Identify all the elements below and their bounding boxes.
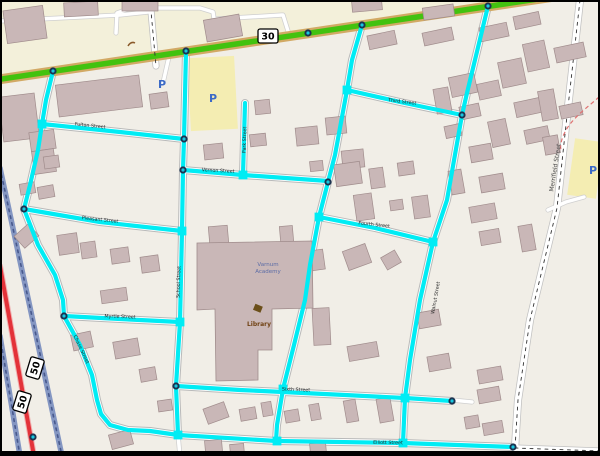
route-node-center — [460, 113, 463, 116]
building — [139, 367, 157, 383]
route-node-center — [450, 399, 453, 402]
building — [43, 155, 60, 169]
building — [284, 409, 300, 423]
building — [498, 58, 527, 88]
route-node-center — [181, 168, 184, 171]
map-viewer-window[interactable]: Fulton StreetPark StreetVernon StreetPle… — [0, 0, 600, 456]
building — [369, 167, 386, 189]
parking-icon: P — [209, 92, 217, 105]
route-node-center — [22, 207, 25, 210]
library-label: Library — [247, 321, 271, 328]
route-vertex-handle[interactable] — [38, 120, 47, 129]
route-node-center — [326, 180, 329, 183]
route-vertex-handle[interactable] — [273, 437, 282, 446]
building — [397, 161, 415, 176]
svg-text:30: 30 — [261, 32, 275, 43]
building — [157, 399, 172, 412]
building — [295, 126, 319, 146]
street-name-label: School Street — [175, 266, 182, 298]
street-name-label: Myrtle Street — [104, 313, 136, 320]
route-vertex-handle[interactable] — [176, 318, 185, 327]
building — [110, 247, 130, 264]
building — [261, 401, 273, 417]
route-vertex-handle[interactable] — [343, 86, 352, 95]
building — [389, 199, 403, 211]
parking-icon: P — [158, 78, 166, 91]
route-vertex-handle[interactable] — [401, 394, 410, 403]
building — [279, 225, 293, 242]
frame-top — [0, 0, 600, 2]
map-canvas[interactable]: Fulton StreetPark StreetVernon StreetPle… — [0, 0, 600, 456]
building — [479, 228, 501, 245]
route-vertex-handle[interactable] — [174, 431, 183, 440]
parking-icon: P — [589, 164, 597, 177]
route-vertex-handle[interactable] — [239, 171, 248, 180]
route-node-center — [62, 314, 65, 317]
route-shield-30: 30 — [258, 29, 278, 43]
route-node-center — [174, 384, 177, 387]
school-name-label: VarnumAcademy — [255, 262, 281, 275]
road — [515, 448, 600, 451]
building — [37, 185, 55, 200]
street-name-label: Park Street — [242, 127, 249, 154]
building — [249, 133, 266, 147]
building — [334, 161, 363, 186]
route-node-center — [486, 4, 489, 7]
building — [353, 193, 374, 221]
street-name-label: Elliott Street — [373, 440, 403, 447]
frame-bottom — [0, 451, 600, 456]
building — [203, 143, 223, 160]
route-node-center — [184, 49, 187, 52]
building — [80, 241, 97, 259]
street-name-label: Sixth Street — [282, 387, 311, 394]
route-node-center — [31, 435, 34, 438]
building — [140, 255, 160, 273]
frame-left — [0, 0, 2, 456]
building — [412, 195, 431, 219]
building — [310, 160, 324, 171]
route-node-center — [511, 445, 514, 448]
route-vertex-handle[interactable] — [315, 213, 324, 222]
building — [239, 407, 257, 422]
route-vertex-handle[interactable] — [429, 238, 438, 247]
building — [254, 99, 270, 114]
route-node-center — [182, 137, 185, 140]
route-node-center — [306, 31, 309, 34]
route-vertex-handle[interactable] — [178, 227, 187, 236]
building — [64, 1, 99, 17]
building — [57, 233, 80, 256]
route-node-center — [360, 23, 363, 26]
building — [312, 308, 331, 346]
building — [208, 225, 228, 245]
building — [205, 439, 223, 452]
building — [464, 415, 480, 429]
building — [469, 143, 493, 163]
route-node-center — [51, 69, 54, 72]
building — [3, 5, 47, 43]
building — [417, 309, 441, 329]
building — [149, 92, 169, 109]
